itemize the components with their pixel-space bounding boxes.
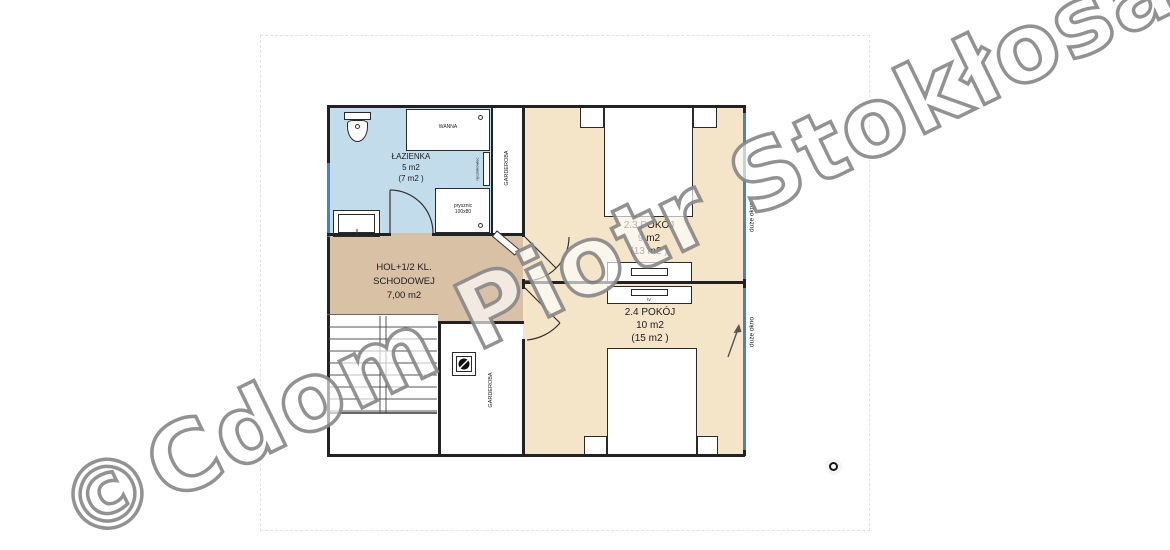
wall-top bbox=[327, 105, 745, 108]
wall-right bbox=[743, 450, 746, 456]
nightstand bbox=[580, 107, 604, 128]
wall-bathroom-wardrobe bbox=[491, 105, 493, 235]
shower-drain-icon bbox=[478, 223, 483, 228]
wall-left bbox=[327, 105, 330, 163]
shower-size: 100x80 bbox=[454, 209, 472, 215]
bathroom-area: 5 m2 bbox=[392, 162, 431, 173]
shower-label: prysznic 100x80 bbox=[454, 203, 472, 215]
bathroom-name: ŁAZIENKA bbox=[392, 151, 431, 162]
bathroom-label: ŁAZIENKA 5 m2 (7 m2 ) bbox=[392, 151, 431, 184]
wall-bottom bbox=[327, 454, 745, 457]
toilet-flush-icon bbox=[355, 124, 360, 129]
hall-name-line1: HOL+1/2 KL. bbox=[373, 261, 435, 275]
room-2-4-label: 2.4 POKÓJ 10 m2 (15 m2 ) bbox=[625, 306, 676, 345]
window-left bbox=[327, 163, 331, 237]
room-2-4-area: 10 m2 bbox=[625, 319, 676, 332]
window-right-bottom bbox=[743, 288, 746, 450]
room-2-4-total-area: (15 m2 ) bbox=[625, 332, 676, 345]
window-right-bottom-label: duże okno bbox=[749, 317, 756, 347]
bathroom-total-area: (7 m2 ) bbox=[392, 173, 431, 184]
bathtub-label: WANNA bbox=[439, 124, 457, 130]
wall-right bbox=[743, 105, 746, 113]
wardrobe-top-label: GARDEROBA bbox=[504, 150, 510, 185]
plan-canvas: ŁAZIENKA 5 m2 (7 m2 ) HOL+1/2 KL. SCHODO… bbox=[0, 0, 1170, 550]
wall-hall-rooms bbox=[522, 339, 525, 456]
towel-radiator-label: ręcznikowiec bbox=[475, 158, 480, 181]
tv-label: tv bbox=[647, 297, 651, 302]
nightstand bbox=[693, 107, 717, 128]
wardrobe-bottom-label: GARDEROBA bbox=[488, 372, 494, 407]
wall-right bbox=[743, 279, 746, 288]
towel-radiator bbox=[483, 152, 490, 186]
bathtub-drain-icon bbox=[478, 115, 483, 120]
peephole-mark-icon bbox=[829, 462, 838, 471]
toilet-cistern bbox=[344, 112, 371, 120]
room-2-4-name: 2.4 POKÓJ bbox=[625, 306, 676, 319]
washbasin-bowl bbox=[338, 214, 375, 233]
wall-hall-rooms bbox=[522, 105, 525, 237]
nightstand bbox=[584, 436, 607, 456]
nightstand bbox=[697, 436, 718, 456]
wall-bathroom-south bbox=[432, 233, 523, 236]
bed-2-4 bbox=[607, 348, 697, 456]
wall-bathroom-south bbox=[327, 233, 391, 236]
